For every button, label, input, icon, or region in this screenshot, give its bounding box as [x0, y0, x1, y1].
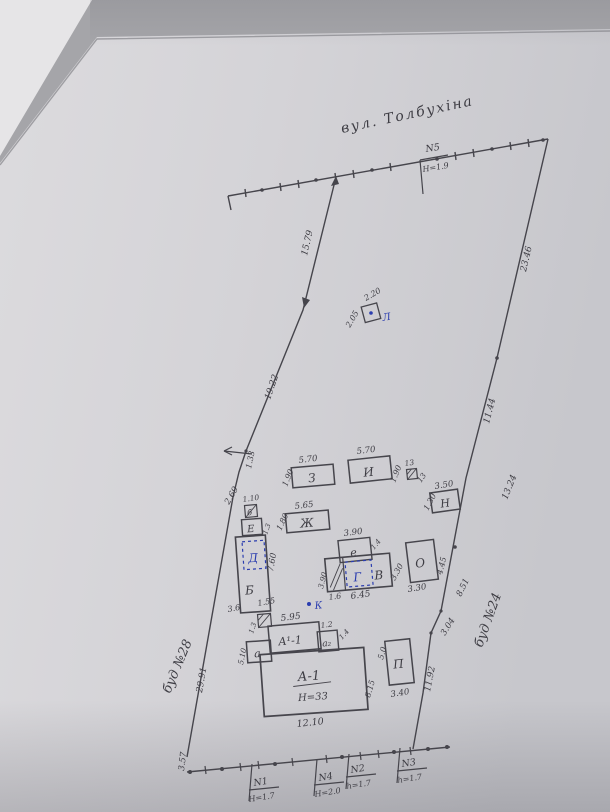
- svg-text:а₂: а₂: [322, 639, 332, 650]
- svg-text:З: З: [308, 471, 317, 486]
- photo-shadow-bottom: [0, 700, 610, 812]
- structure-L-dot: [369, 311, 373, 315]
- svg-text:А¹-1: А¹-1: [277, 633, 303, 648]
- svg-text:Д: Д: [247, 551, 259, 566]
- svg-text:О: О: [414, 556, 426, 571]
- svg-text:В: В: [373, 568, 384, 583]
- svg-text:Н=33: Н=33: [297, 691, 329, 704]
- svg-text:А-1: А-1: [296, 669, 321, 686]
- svg-text:б: б: [247, 508, 253, 517]
- svg-text:П: П: [392, 657, 405, 672]
- dim-V-bottom-left: 1.6: [328, 591, 342, 602]
- svg-text:Е: Е: [246, 524, 256, 536]
- photo-shadow-top: [90, 0, 610, 46]
- point-K-label: К: [313, 600, 323, 612]
- point-K-dot: [307, 602, 311, 606]
- survey-plan-photo: вул. Толбухіна N5 Н=1.9 15.79 19.22 1.33…: [0, 0, 610, 812]
- svg-text:Б: Б: [244, 583, 255, 598]
- dim-shed13-top: 13: [404, 458, 415, 468]
- svg-text:И: И: [362, 465, 375, 480]
- dim-a2-top: 1.2: [320, 620, 333, 630]
- svg-text:Ж: Ж: [299, 515, 315, 530]
